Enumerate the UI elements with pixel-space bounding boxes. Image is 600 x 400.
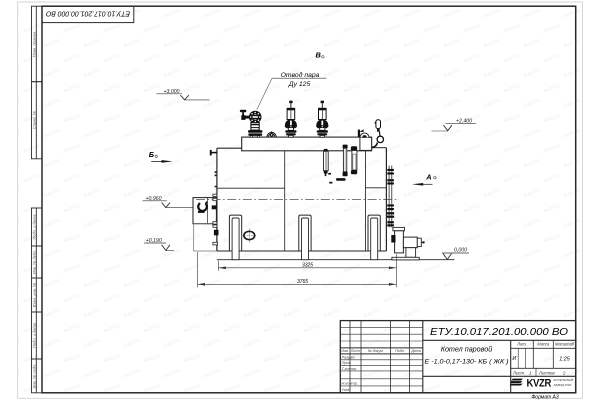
svg-text:Лит.: Лит. (516, 342, 527, 347)
svg-text:Масса: Масса (537, 342, 550, 347)
svg-text:Подп. и дата: Подп. и дата (32, 214, 37, 240)
svg-text:Перв. примен.: Перв. примен. (32, 31, 37, 58)
svg-text:Н.контр.: Н.контр. (342, 381, 358, 386)
svg-text:В: В (316, 51, 322, 60)
svg-text:Изм.: Изм. (341, 349, 349, 353)
svg-text:Б: Б (149, 150, 154, 159)
svg-text:ЗАВОД РЭП: ЗАВОД РЭП (554, 383, 573, 387)
svg-text:Взам. инв. №: Взам. инв. № (32, 282, 37, 307)
svg-text:Е -1,0-0,17-130- КБ ( ЖК ): Е -1,0-0,17-130- КБ ( ЖК ) (425, 359, 509, 366)
svg-text:Лист: Лист (512, 370, 524, 375)
svg-text:Ду 125: Ду 125 (288, 81, 311, 88)
svg-text:КОТЕЛЬНЫЙ: КОТЕЛЬНЫЙ (554, 378, 574, 382)
svg-text:Справ. №: Справ. № (32, 110, 37, 129)
svg-text:KVZR: KVZR (527, 378, 552, 390)
svg-text:Формат А3: Формат А3 (531, 395, 559, 400)
svg-text:Листов: Листов (538, 370, 555, 375)
svg-text:Т.контр.: Т.контр. (342, 366, 358, 371)
svg-text:А: А (425, 172, 431, 181)
svg-text:Подп. и дата: Подп. и дата (32, 322, 37, 348)
svg-text:Лист: Лист (350, 349, 360, 353)
svg-text:Инв. № подл.: Инв. № подл. (32, 364, 37, 389)
svg-text:Дата: Дата (410, 349, 420, 353)
svg-text:Отвод пара: Отвод пара (281, 71, 320, 79)
svg-text:1:25: 1:25 (559, 357, 570, 363)
svg-text:Утв.: Утв. (342, 387, 351, 392)
svg-text:Подп.: Подп. (395, 349, 405, 353)
svg-text:ЕТУ.10.017.201.00.000 ВО: ЕТУ.10.017.201.00.000 ВО (46, 10, 130, 19)
svg-text:Масштаб: Масштаб (555, 342, 575, 347)
svg-text:№ докум.: № докум. (368, 349, 384, 353)
svg-text:ЕТУ.10.017.201.00.000 ВО: ЕТУ.10.017.201.00.000 ВО (430, 327, 568, 338)
svg-text:Инв. № дубл.: Инв. № дубл. (32, 250, 37, 275)
svg-text:3765: 3765 (297, 279, 308, 285)
svg-text:Пров.: Пров. (342, 360, 352, 365)
svg-text:Разраб.: Разраб. (342, 355, 356, 360)
svg-text:0,000: 0,000 (454, 247, 467, 253)
svg-text:3325: 3325 (302, 263, 313, 269)
svg-text:Котел паровой: Котел паровой (441, 345, 493, 354)
svg-text:И: И (512, 356, 516, 362)
